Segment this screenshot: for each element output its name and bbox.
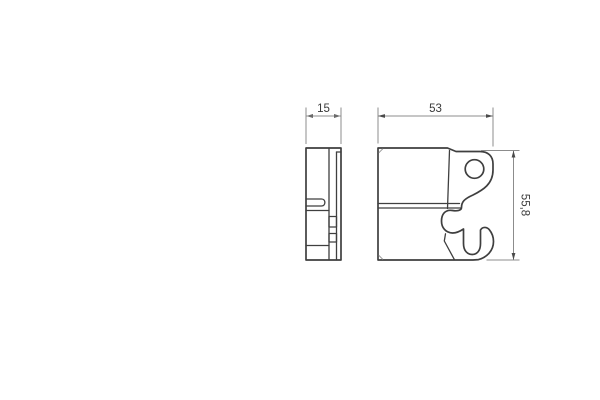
front-view-mounting-hole xyxy=(465,160,484,179)
side-view-clip-tab-upper xyxy=(329,217,337,228)
arrowhead-top xyxy=(512,151,516,158)
side-view-spring-slot xyxy=(306,199,325,206)
front-view xyxy=(378,148,494,260)
arrowhead-bottom xyxy=(512,253,516,260)
front-view-friction-edge-upper xyxy=(448,151,450,209)
dimension-front-view-height: 55,8 xyxy=(481,151,531,261)
dimension-label-front-height: 55,8 xyxy=(519,194,531,216)
front-view-friction-edge-lower xyxy=(444,234,454,260)
side-view-outline xyxy=(306,148,341,260)
dimension-front-view-width: 53 xyxy=(306,103,493,147)
side-view-clip-tab-lower xyxy=(329,234,337,243)
drawing-canvas: 15 53 55,8 xyxy=(0,0,600,400)
side-view xyxy=(306,148,341,260)
arrowhead-right xyxy=(486,114,493,118)
dimension-label-front-width: 53 xyxy=(429,103,442,115)
front-view-corner-tick-top-left xyxy=(379,149,383,153)
front-view-corner-tick-bottom-left xyxy=(379,255,383,259)
arrowhead-left xyxy=(378,114,385,118)
dimension-label-side-width: 15 xyxy=(317,103,330,115)
brake-pad-technical-drawing: 15 53 55,8 xyxy=(0,0,600,400)
dimension-side-view-width: 15 xyxy=(306,103,341,144)
